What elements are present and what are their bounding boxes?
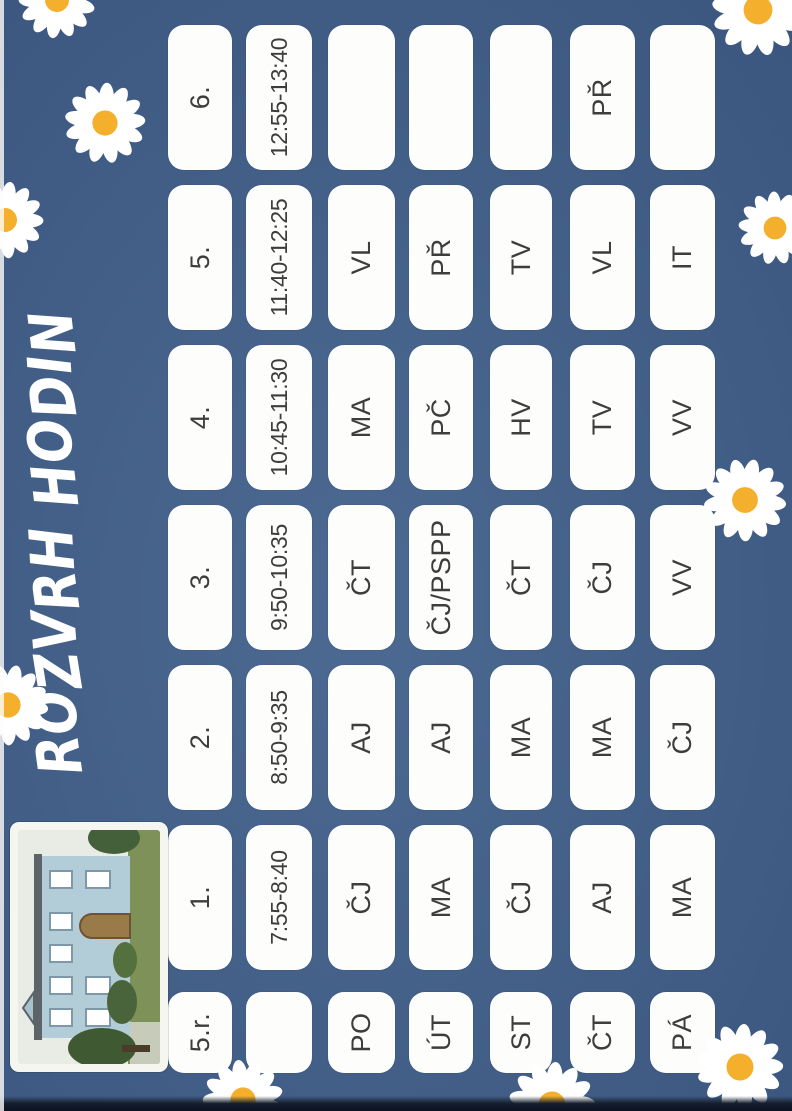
subject-cell: ČJ xyxy=(490,825,552,970)
period-cell: 4. xyxy=(168,345,232,490)
subject-cell: VL xyxy=(570,185,635,330)
timetable-sheet: ROZVRH HODIN 5.r.1.2.3.4.5.6.7:55-8:408:… xyxy=(0,0,792,1111)
subject-cell: ČJ xyxy=(328,825,395,970)
title-letter: V xyxy=(19,609,92,654)
subject-cell: MA xyxy=(409,825,473,970)
subject-cell: PČ xyxy=(409,345,473,490)
subject-cell: AJ xyxy=(570,825,635,970)
empty-cell xyxy=(328,25,395,170)
subject-cell: TV xyxy=(570,345,635,490)
empty-cell xyxy=(409,25,473,170)
subject-cell: PŘ xyxy=(409,185,473,330)
time-cell: 11:40-12:25 xyxy=(246,185,312,330)
subject-cell: MA xyxy=(490,665,552,810)
daisy-icon xyxy=(56,74,153,171)
title-letter: N xyxy=(16,307,91,357)
period-cell: 5. xyxy=(168,185,232,330)
subject-cell: TV xyxy=(490,185,552,330)
period-cell: 3. xyxy=(168,505,232,650)
subject-cell: ČT xyxy=(328,505,395,650)
daisy-icon xyxy=(734,187,792,269)
day-cell: ČT xyxy=(570,992,635,1073)
day-cell: ÚT xyxy=(409,992,473,1073)
time-cell: 12:55-13:40 xyxy=(246,25,312,170)
subject-cell: ČJ xyxy=(650,665,715,810)
school-building-photo xyxy=(10,822,168,1072)
scan-edge-strip xyxy=(0,0,4,1111)
period-cell: 6. xyxy=(168,25,232,170)
subject-cell: VL xyxy=(328,185,395,330)
period-cell: 2. xyxy=(168,665,232,810)
subject-cell: VV xyxy=(650,345,715,490)
subject-cell: MA xyxy=(328,345,395,490)
empty-cell xyxy=(490,25,552,170)
subject-cell: AJ xyxy=(409,665,473,810)
title-letter: R xyxy=(19,566,94,614)
day-cell: PO xyxy=(328,992,395,1073)
subject-cell: HV xyxy=(490,345,552,490)
time-cell: 7:55-8:40 xyxy=(246,825,312,970)
title-letter: H xyxy=(18,460,93,510)
period-cell: 1. xyxy=(168,825,232,970)
scan-edge-bar xyxy=(0,1096,792,1111)
subject-cell: MA xyxy=(570,665,635,810)
time-cell: 9:50-10:35 xyxy=(246,505,312,650)
title-letter: D xyxy=(15,371,91,423)
subject-cell: IT xyxy=(650,185,715,330)
subject-cell: ČJ/PSPP xyxy=(409,505,473,650)
subject-cell: ČT xyxy=(490,505,552,650)
school-photo-illustration xyxy=(18,830,160,1064)
title-letter: H xyxy=(17,524,89,571)
subject-cell: PŘ xyxy=(570,25,635,170)
subject-cell: MA xyxy=(650,825,715,970)
time-cell: 8:50-9:35 xyxy=(246,665,312,810)
scanned-page: ROZVRH HODIN 5.r.1.2.3.4.5.6.7:55-8:408:… xyxy=(0,0,792,1111)
daisy-icon xyxy=(17,0,97,40)
title-letter: O xyxy=(15,417,87,464)
subject-cell: AJ xyxy=(328,665,395,810)
time-cell: 10:45-11:30 xyxy=(246,345,312,490)
subject-cell: ČJ xyxy=(570,505,635,650)
